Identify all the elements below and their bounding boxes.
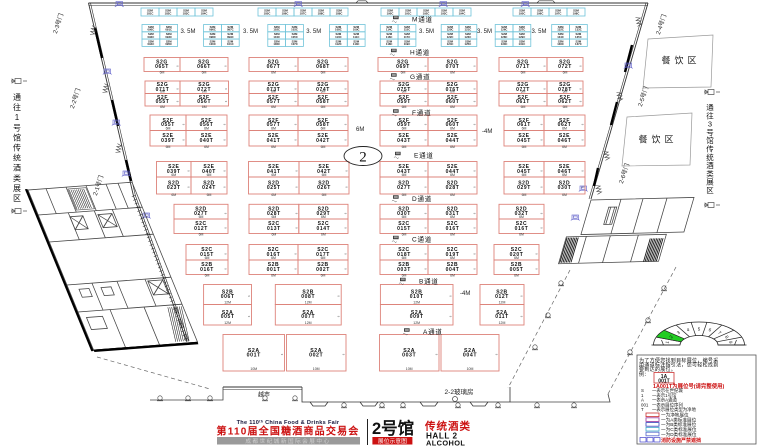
svg-text:6M: 6M: [521, 70, 526, 74]
svg-text:009T: 009T: [410, 314, 424, 320]
svg-text:188C: 188C: [318, 11, 325, 15]
svg-text:6M: 6M: [522, 145, 527, 149]
svg-text:2号馆: 2号馆: [372, 418, 414, 438]
svg-text:消防设施严禁遮挡: 消防设施严禁遮挡: [661, 437, 701, 444]
svg-text:116C: 116C: [386, 35, 393, 39]
svg-text:106C: 106C: [273, 42, 280, 46]
svg-text:127C: 127C: [519, 28, 526, 32]
svg-text:115C: 115C: [404, 28, 411, 32]
svg-text:1: 1: [15, 113, 20, 122]
svg-text:113C: 113C: [353, 42, 360, 46]
svg-text:往: 往: [13, 102, 21, 112]
svg-text:198C: 198C: [573, 11, 580, 15]
svg-text:044T: 044T: [446, 138, 460, 144]
svg-text:091C: 091C: [165, 28, 172, 32]
svg-text:G通道: G通道: [410, 72, 430, 81]
svg-text:T: T: [641, 407, 644, 412]
svg-text:6M: 6M: [160, 105, 165, 109]
svg-text:6M: 6M: [519, 232, 524, 236]
svg-text:6M: 6M: [207, 193, 212, 197]
svg-text:103C: 103C: [291, 28, 298, 32]
svg-text:108C: 108C: [335, 28, 342, 32]
svg-text:065T: 065T: [155, 64, 169, 70]
svg-text:007T: 007T: [301, 314, 315, 320]
svg-text:馆: 馆: [13, 132, 21, 142]
svg-text:111C: 111C: [353, 35, 359, 39]
svg-text:122C: 122C: [447, 35, 454, 39]
svg-text:137C: 137C: [575, 42, 582, 46]
svg-text:6M: 6M: [271, 105, 276, 109]
svg-text:121C: 121C: [465, 28, 472, 32]
svg-text:6M: 6M: [521, 105, 526, 109]
svg-text:M通道: M通道: [412, 15, 433, 24]
svg-text:-4M: -4M: [482, 129, 492, 135]
svg-text:3. 5M: 3. 5M: [306, 29, 321, 35]
svg-text:185C: 185C: [264, 11, 271, 15]
svg-text:120C: 120C: [447, 28, 454, 32]
svg-text:130C: 130C: [501, 42, 508, 46]
svg-text:092C: 092C: [148, 35, 155, 39]
svg-text:ALCOHOL: ALCOHOL: [426, 439, 465, 446]
svg-text:118C: 118C: [386, 42, 393, 46]
svg-text:025T: 025T: [267, 185, 281, 191]
svg-text:区: 区: [13, 194, 21, 203]
svg-text:001T: 001T: [267, 267, 281, 273]
svg-text:012T: 012T: [495, 294, 509, 300]
svg-text:C通道: C通道: [412, 235, 432, 244]
svg-text:002T: 002T: [309, 352, 323, 358]
svg-text:2: 2: [359, 150, 367, 166]
svg-text:6M: 6M: [271, 145, 276, 149]
svg-text:194C: 194C: [459, 11, 466, 15]
svg-text:026T: 026T: [317, 185, 331, 191]
svg-text:6M: 6M: [271, 273, 276, 277]
svg-text:131C: 131C: [519, 42, 526, 46]
svg-text:129C: 129C: [519, 35, 526, 39]
svg-text:098C: 098C: [209, 35, 216, 39]
svg-text:195C: 195C: [519, 11, 526, 15]
svg-text:6M: 6M: [205, 273, 210, 277]
svg-text:6M: 6M: [356, 127, 364, 133]
svg-text:192C: 192C: [423, 11, 430, 15]
svg-text:6M: 6M: [322, 193, 327, 197]
svg-text:6M: 6M: [321, 145, 326, 149]
svg-text:6M: 6M: [271, 193, 276, 197]
svg-text:119C: 119C: [404, 42, 411, 46]
svg-text:A通道: A通道: [423, 327, 443, 336]
svg-text:6M: 6M: [514, 273, 519, 277]
svg-text:-4M: -4M: [460, 291, 470, 297]
svg-text:12M: 12M: [305, 321, 312, 325]
svg-text:126C: 126C: [501, 28, 508, 32]
svg-text:6M: 6M: [321, 273, 326, 277]
svg-text:187C: 187C: [300, 11, 307, 15]
svg-text:6M: 6M: [450, 232, 455, 236]
svg-text:6M: 6M: [450, 145, 455, 149]
svg-text:一为D类标准展位: 一为D类标准展位: [661, 431, 697, 438]
svg-text:6M: 6M: [202, 105, 207, 109]
svg-text:001T: 001T: [247, 352, 261, 358]
svg-text:114C: 114C: [386, 28, 393, 32]
svg-text:6M: 6M: [402, 145, 407, 149]
svg-text:6M: 6M: [160, 70, 165, 74]
svg-text:12M: 12M: [413, 321, 420, 325]
svg-text:101C: 101C: [227, 42, 234, 46]
svg-text:102C: 102C: [273, 28, 280, 32]
svg-text:展: 展: [13, 184, 21, 193]
svg-text:190C: 190C: [387, 11, 394, 15]
svg-text:040T: 040T: [200, 138, 214, 144]
svg-text:104C: 104C: [273, 35, 280, 39]
svg-text:071T: 071T: [516, 64, 530, 70]
svg-text:093C: 093C: [165, 35, 172, 39]
svg-text:109C: 109C: [353, 28, 360, 32]
svg-text:123C: 123C: [465, 35, 472, 39]
svg-text:132C: 132C: [557, 28, 564, 32]
svg-text:3. 5M: 3. 5M: [532, 29, 547, 35]
svg-text:酒: 酒: [13, 164, 21, 173]
svg-text:3. 5M: 3. 5M: [477, 29, 492, 35]
svg-text:F通道: F通道: [412, 108, 431, 117]
svg-text:005T: 005T: [510, 267, 524, 273]
svg-text:117C: 117C: [404, 35, 411, 39]
svg-text:090C: 090C: [148, 28, 155, 32]
svg-text:2-2玻璃房: 2-2玻璃房: [445, 387, 474, 396]
svg-text:004T: 004T: [463, 352, 477, 358]
svg-text:传: 传: [13, 143, 21, 153]
svg-text:004T: 004T: [446, 267, 460, 273]
svg-text:186C: 186C: [282, 11, 289, 15]
svg-text:展位示意图: 展位示意图: [378, 437, 407, 445]
svg-text:013T: 013T: [267, 226, 281, 232]
svg-text:112C: 112C: [335, 42, 342, 46]
svg-text:第110届全国糖酒商品交易会: 第110届全国糖酒商品交易会: [217, 425, 360, 438]
svg-text:6M: 6M: [563, 105, 568, 109]
svg-text:餐饮区: 餐饮区: [638, 134, 677, 145]
svg-text:6M: 6M: [402, 105, 407, 109]
svg-text:133C: 133C: [575, 28, 582, 32]
svg-text:189C: 189C: [336, 11, 343, 15]
svg-text:6M: 6M: [402, 232, 407, 236]
svg-text:107C: 107C: [291, 42, 298, 46]
svg-text:6M: 6M: [450, 273, 455, 277]
svg-text:069T: 069T: [396, 64, 410, 70]
svg-text:例：: 例：: [639, 371, 649, 378]
svg-text:区: 区: [706, 186, 714, 195]
svg-text:B通道: B通道: [419, 277, 439, 286]
svg-text:6M: 6M: [562, 193, 567, 197]
svg-text:136C: 136C: [557, 42, 564, 46]
svg-text:6M: 6M: [321, 232, 326, 236]
svg-text:023T: 023T: [167, 185, 181, 191]
svg-text:6M: 6M: [321, 70, 326, 74]
svg-text:015T: 015T: [397, 226, 411, 232]
svg-text:6M: 6M: [199, 232, 204, 236]
svg-text:6M: 6M: [450, 193, 455, 197]
svg-text:6M: 6M: [171, 193, 176, 197]
svg-text:3. 5M: 3. 5M: [181, 29, 196, 35]
svg-text:类: 类: [13, 173, 21, 183]
svg-text:The 110th China Food & Drinks: The 110th China Food & Drinks Fair: [237, 419, 340, 426]
svg-text:039T: 039T: [161, 138, 175, 144]
svg-text:028T: 028T: [446, 185, 460, 191]
svg-text:003T: 003T: [397, 267, 411, 273]
svg-text:越市: 越市: [258, 391, 270, 399]
svg-text:182C: 182C: [165, 11, 172, 15]
svg-text:统: 统: [13, 153, 21, 163]
svg-text:6M: 6M: [402, 193, 407, 197]
svg-text:10M: 10M: [467, 367, 474, 371]
svg-text:196C: 196C: [537, 11, 544, 15]
svg-text:003T: 003T: [402, 352, 416, 358]
svg-text:010T: 010T: [410, 294, 424, 300]
svg-text:6M: 6M: [563, 70, 568, 74]
svg-text:029T: 029T: [517, 185, 531, 191]
svg-text:6M: 6M: [202, 70, 207, 74]
svg-text:134C: 134C: [557, 35, 564, 39]
svg-text:10M: 10M: [313, 367, 320, 371]
svg-text:030T: 030T: [558, 185, 572, 191]
svg-text:094C: 094C: [148, 42, 155, 46]
svg-text:016T: 016T: [446, 226, 460, 232]
svg-text:10M: 10M: [250, 367, 257, 371]
svg-text:6M: 6M: [450, 105, 455, 109]
svg-text:008T: 008T: [301, 294, 315, 300]
svg-text:号: 号: [13, 123, 21, 132]
svg-text:012T: 012T: [194, 226, 208, 232]
svg-text:066T: 066T: [197, 64, 211, 70]
svg-text:016T: 016T: [200, 267, 214, 273]
svg-text:024T: 024T: [202, 185, 216, 191]
svg-text:6M: 6M: [450, 70, 455, 74]
svg-text:045T: 045T: [517, 138, 531, 144]
svg-text:183C: 183C: [183, 11, 190, 15]
svg-text:餐饮区: 餐饮区: [661, 55, 700, 66]
svg-text:068T: 068T: [316, 64, 330, 70]
svg-text:10M: 10M: [406, 367, 413, 371]
svg-text:135C: 135C: [575, 35, 582, 39]
svg-text:125C: 125C: [465, 42, 472, 46]
svg-text:193C: 193C: [441, 11, 448, 15]
svg-text:027T: 027T: [397, 185, 411, 191]
svg-text:097C: 097C: [227, 28, 234, 32]
svg-text:197C: 197C: [555, 11, 562, 15]
svg-text:3. 5M: 3. 5M: [419, 29, 434, 35]
svg-text:181C: 181C: [147, 11, 154, 15]
svg-text:191C: 191C: [405, 11, 412, 15]
svg-text:6M: 6M: [321, 105, 326, 109]
svg-text:100C: 100C: [209, 42, 216, 46]
svg-text:041T: 041T: [267, 138, 281, 144]
svg-text:6M: 6M: [271, 70, 276, 74]
svg-text:E通道: E通道: [414, 151, 434, 160]
svg-text:D通道: D通道: [412, 194, 432, 203]
svg-text:099C: 099C: [227, 35, 234, 39]
svg-text:067T: 067T: [267, 64, 281, 70]
svg-text:6M: 6M: [204, 145, 209, 149]
svg-text:12M: 12M: [499, 321, 506, 325]
svg-text:6M: 6M: [522, 193, 527, 197]
svg-text:110C: 110C: [335, 35, 342, 39]
svg-text:006T: 006T: [221, 294, 235, 300]
svg-text:002T: 002T: [316, 267, 330, 273]
svg-text:016T: 016T: [515, 226, 529, 232]
svg-text:042T: 042T: [316, 138, 330, 144]
svg-text:095C: 095C: [165, 42, 172, 46]
svg-text:6M: 6M: [562, 145, 567, 149]
svg-text:005T: 005T: [221, 314, 235, 320]
svg-text:124C: 124C: [447, 42, 454, 46]
svg-text:070T: 070T: [446, 64, 460, 70]
svg-text:通: 通: [13, 92, 21, 102]
svg-text:011T: 011T: [495, 314, 509, 320]
svg-text:184C: 184C: [201, 11, 208, 15]
svg-text:6M: 6M: [402, 273, 407, 277]
svg-text:072T: 072T: [558, 64, 572, 70]
svg-text:6M: 6M: [271, 232, 276, 236]
svg-text:3. 5M: 3. 5M: [243, 29, 258, 35]
svg-text:H通道: H通道: [410, 48, 430, 57]
svg-text:105C: 105C: [291, 35, 298, 39]
svg-text:12M: 12M: [224, 321, 231, 325]
svg-text:014T: 014T: [317, 226, 331, 232]
svg-text:046T: 046T: [558, 138, 572, 144]
svg-text:成都世纪城新国际会展中心: 成都世纪城新国际会展中心: [245, 437, 330, 445]
svg-text:6M: 6M: [401, 70, 406, 74]
svg-text:043T: 043T: [397, 138, 411, 144]
svg-text:6M: 6M: [166, 145, 171, 149]
svg-text:128C: 128C: [501, 35, 508, 39]
svg-text:096C: 096C: [209, 28, 216, 32]
